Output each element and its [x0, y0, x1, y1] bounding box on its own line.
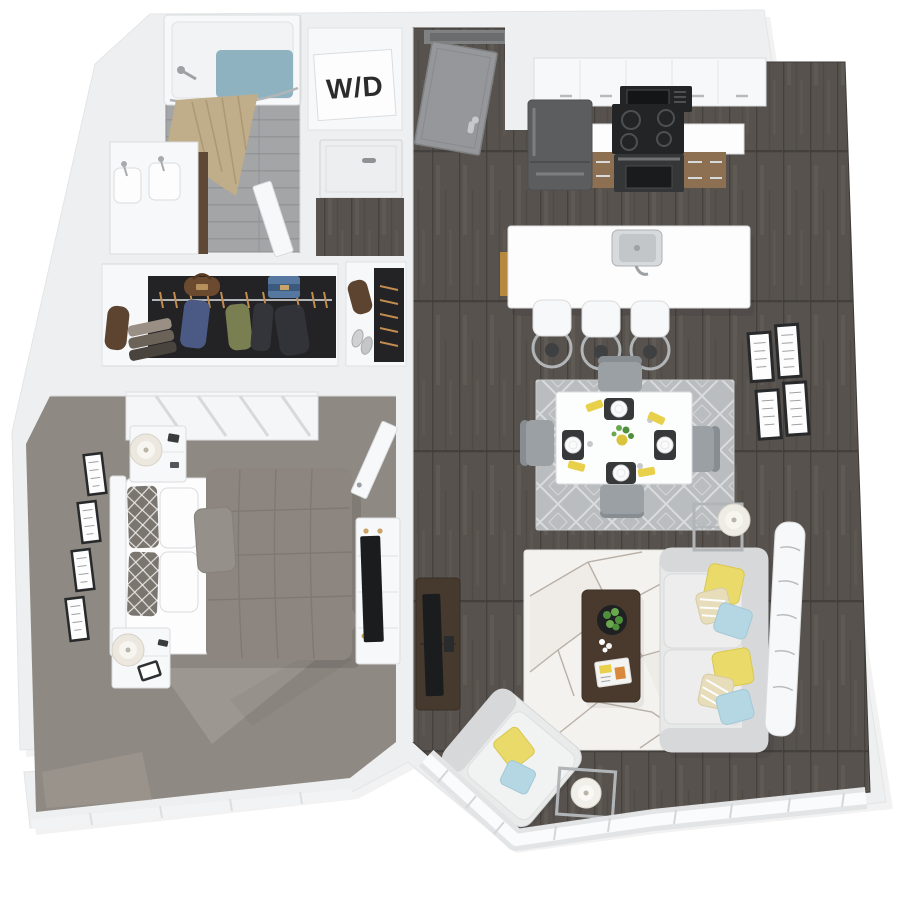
pillow-accent [194, 507, 236, 573]
living-tv [422, 594, 444, 697]
tv-console [416, 578, 460, 710]
hall-floor [316, 198, 404, 256]
dining-chair-left [520, 420, 554, 466]
blue-bag [268, 276, 300, 298]
range [612, 104, 684, 192]
sink-right [149, 163, 180, 200]
nightstand-bottom [112, 628, 170, 688]
walk-in-closet [102, 264, 338, 366]
base-cabinet-left [592, 152, 614, 188]
table-lamp-top [130, 434, 162, 466]
planter-bowl [597, 605, 627, 635]
bedroom [26, 392, 400, 812]
nightstand-item [170, 462, 179, 468]
bedroom-tv [360, 536, 384, 643]
small-closet [346, 262, 406, 366]
sink-left [114, 168, 141, 203]
dining-chair-bottom [600, 484, 644, 518]
bathtub [164, 15, 301, 105]
door-handle [362, 158, 376, 163]
base-cabinet-right [682, 152, 726, 188]
pillow-patterned-2 [127, 551, 159, 616]
pillow-patterned-1 [127, 485, 159, 548]
vanity [110, 142, 208, 254]
dresser-knob [363, 528, 368, 533]
nightstand-top [130, 426, 186, 482]
dresser-knob [377, 528, 382, 533]
dining-chair-top [598, 356, 642, 392]
side-table-lamp [718, 504, 750, 536]
table-lamp-bottom [112, 634, 144, 666]
tub-water [216, 50, 293, 98]
refrigerator [528, 100, 592, 190]
wd-label: W/D [325, 70, 384, 105]
pillow-white-1 [160, 488, 198, 548]
tv-stand [444, 636, 454, 652]
closet-door [320, 140, 402, 198]
sofa [660, 548, 774, 758]
floor-plan: W/D [0, 0, 900, 900]
laundry-closet: W/D [308, 28, 402, 130]
pillow-white-2 [160, 552, 198, 612]
magazine [594, 658, 631, 687]
coffee-table [582, 590, 644, 708]
hall-closet [316, 140, 404, 256]
dresser-with-tv [356, 518, 400, 664]
hanging-clothes [179, 299, 311, 357]
sofa-arm-bottom [660, 728, 768, 752]
